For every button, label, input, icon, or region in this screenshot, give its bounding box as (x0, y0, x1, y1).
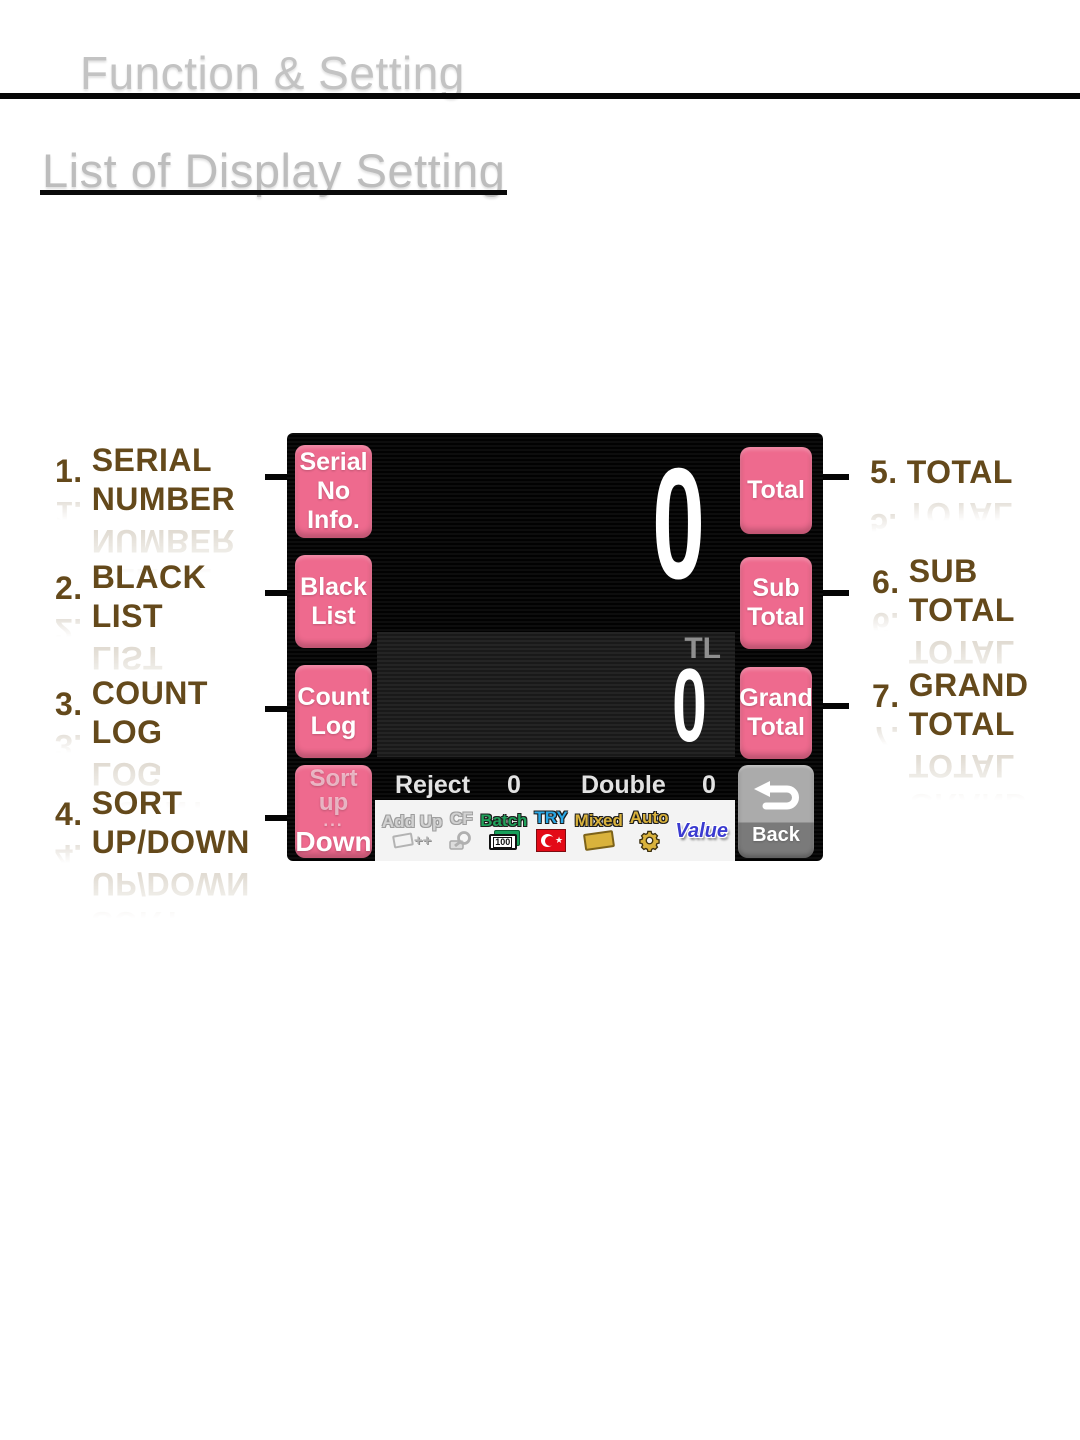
annotation-number-reflection: 6. (872, 604, 900, 643)
annotation-number: 5. (870, 453, 898, 492)
auto-label: Auto (630, 809, 669, 826)
reject-value: 0 (507, 770, 521, 800)
serial-no-info-button[interactable]: Serial No Info. (295, 445, 372, 538)
batch-quantity: 100 (493, 837, 512, 848)
annotation-text: SUBTOTAL (909, 552, 1015, 630)
annotation-text: TOTAL (907, 453, 1013, 492)
back-button[interactable]: Back (738, 765, 814, 858)
auto-gear-icon (638, 829, 661, 852)
manual-page: Function & Setting List of Display Setti… (0, 0, 1080, 1440)
mode-add-up: Add Up ++ (382, 813, 442, 848)
double-value: 0 (702, 770, 716, 800)
mode-icon-bar: Add Up ++ CF Batch (375, 800, 735, 861)
amount-display-value: 0 (672, 654, 707, 758)
sub-total-button[interactable]: Sub Total (740, 557, 812, 649)
button-label-line: Grand (739, 684, 813, 713)
mode-try: TRY ★ (534, 809, 567, 852)
annotation-number: 7. (872, 677, 900, 716)
button-label-line: Serial (299, 448, 367, 477)
annotation-text-reflection: GRANDTOTAL (909, 746, 1029, 824)
total-button[interactable]: Total (740, 447, 812, 534)
annotation-number-reflection: 5. (870, 505, 898, 544)
cf-label: CF (450, 810, 473, 827)
mode-mixed: Mixed (575, 812, 623, 849)
batch-label: Batch (480, 812, 527, 829)
annotation-text: COUNTLOG (92, 674, 208, 752)
button-label-line: No Info. (295, 477, 372, 535)
annotation-sort-up-down: 4. 4. SORTUP/DOWN SORTUP/DOWN (55, 784, 250, 942)
annotation-number: 6. (872, 563, 900, 602)
button-label-line: Total (747, 603, 805, 632)
mode-value: Value (675, 821, 728, 841)
count-display-value: 0 (652, 445, 705, 603)
value-label: Value (675, 821, 728, 841)
header-divider (0, 93, 1080, 99)
turkey-flag-icon: ★ (536, 829, 566, 852)
annotation-number: 3. (55, 685, 83, 724)
button-label-line: Total (747, 713, 805, 742)
button-label-line: List (311, 602, 355, 631)
button-label-line: Black (300, 573, 367, 602)
device-screen: Serial No Info. Black List Count Log Sor… (287, 433, 823, 861)
section-title-underline (40, 190, 507, 195)
annotation-text-reflection: TOTAL (907, 494, 1013, 533)
annotation-number: 1. (55, 452, 83, 491)
count-log-button[interactable]: Count Log (295, 665, 372, 758)
try-label: TRY (534, 809, 567, 826)
sort-dots: ... (323, 815, 343, 827)
reject-label: Reject (395, 770, 470, 800)
annotation-total: 5. 5. TOTAL TOTAL (870, 453, 1013, 544)
button-label-line: Sub (752, 574, 799, 603)
annotation-number-reflection: 4. (55, 836, 83, 875)
sort-up-down-button[interactable]: Sort up ... Down (295, 765, 372, 858)
button-label-line: Total (747, 476, 805, 505)
mode-cf: CF (449, 810, 473, 851)
button-label-line: Log (311, 712, 357, 741)
button-label-line: Count (297, 683, 369, 712)
mixed-banknote-icon (584, 832, 614, 849)
annotation-number-reflection: 1. (55, 493, 83, 532)
annotation-text: SERIALNUMBER (92, 441, 235, 519)
annotation-number-reflection: 2. (55, 610, 83, 649)
sort-down-label: Down (295, 827, 371, 857)
annotation-number: 4. (55, 795, 83, 834)
page-header-title: Function & Setting (80, 46, 465, 100)
annotation-number-reflection: 3. (55, 726, 83, 765)
back-label: Back (752, 825, 800, 845)
add-up-icon: ++ (393, 833, 432, 848)
annotation-text: SORTUP/DOWN (92, 784, 250, 862)
annotation-number-reflection: 7. (872, 718, 900, 757)
black-list-button[interactable]: Black List (295, 555, 372, 648)
amount-panel: TL 0 (377, 632, 735, 757)
annotation-text: GRANDTOTAL (909, 666, 1029, 744)
batch-banknote-icon: 100 (489, 832, 519, 849)
annotation-text: BLACKLIST (92, 558, 206, 636)
double-label: Double (581, 770, 666, 800)
mode-batch: Batch 100 (480, 812, 527, 849)
annotation-number: 2. (55, 569, 83, 608)
annotation-text-reflection: SORTUP/DOWN (92, 864, 250, 942)
mixed-label: Mixed (575, 812, 623, 829)
grand-total-button[interactable]: Grand Total (740, 667, 812, 759)
cf-magnifier-icon (449, 830, 473, 851)
add-up-label: Add Up (382, 813, 442, 830)
annotation-grand-total: 7. 7. GRANDTOTAL GRANDTOTAL (872, 666, 1029, 824)
mode-auto: Auto (630, 809, 669, 852)
back-arrow-icon (752, 778, 800, 816)
sort-up-label: Sort up (295, 767, 372, 815)
